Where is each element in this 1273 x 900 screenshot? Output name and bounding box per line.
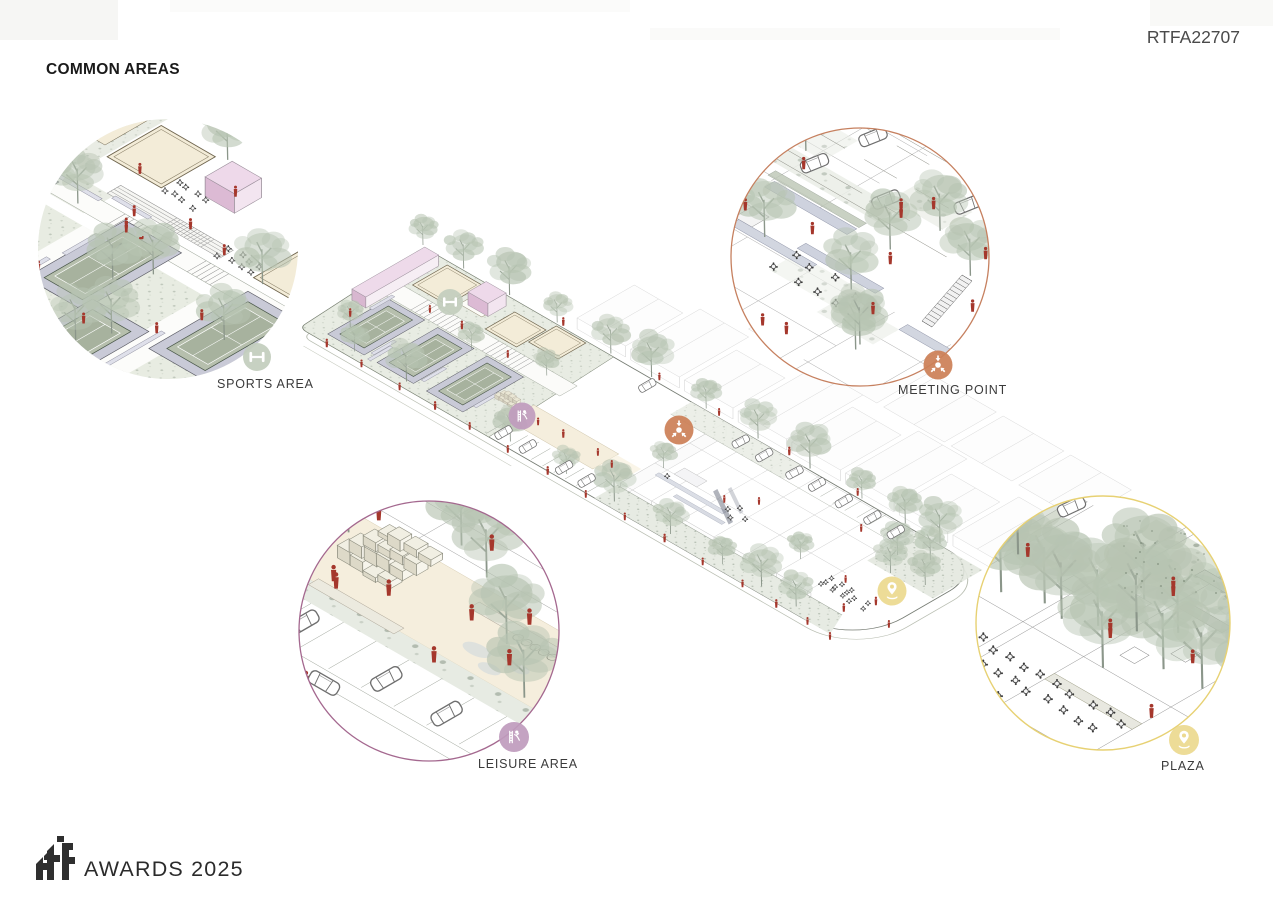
svg-text:LEISURE AREA: LEISURE AREA — [478, 757, 578, 771]
svg-text:SPORTS AREA: SPORTS AREA — [217, 377, 314, 391]
svg-text:RTFA22707: RTFA22707 — [1147, 27, 1240, 47]
svg-text:MEETING POINT: MEETING POINT — [898, 383, 1007, 397]
svg-text:AWARDS 2025: AWARDS 2025 — [84, 857, 244, 881]
svg-text:PLAZA: PLAZA — [1161, 759, 1205, 773]
svg-text:COMMON AREAS: COMMON AREAS — [46, 61, 180, 78]
